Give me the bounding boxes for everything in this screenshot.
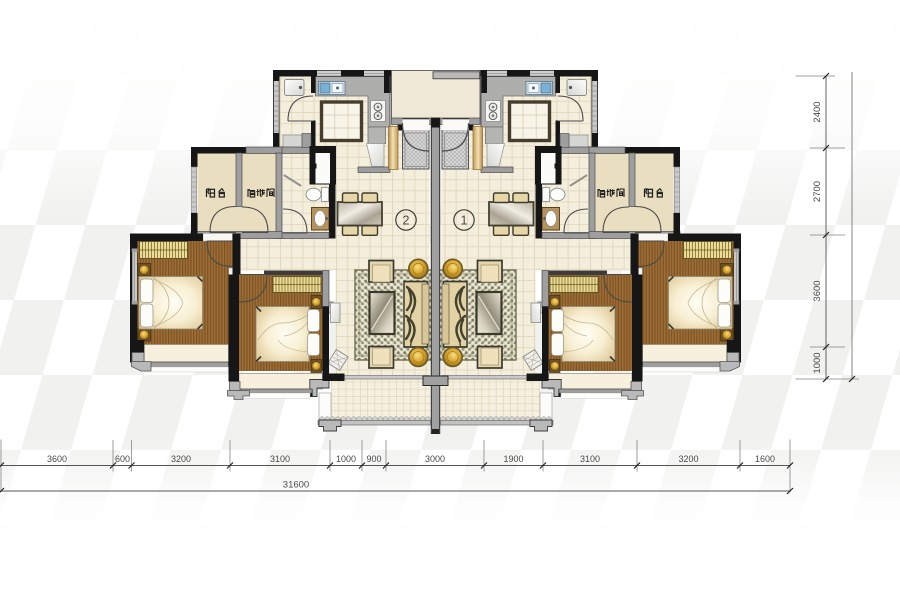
svg-text:600: 600 (115, 454, 130, 464)
svg-text:900: 900 (366, 454, 381, 464)
svg-text:2400: 2400 (812, 101, 823, 122)
svg-text:3600: 3600 (47, 454, 67, 464)
svg-text:1000: 1000 (336, 454, 356, 464)
svg-text:3100: 3100 (580, 454, 600, 464)
svg-text:3000: 3000 (425, 454, 445, 464)
svg-text:1000: 1000 (812, 352, 823, 373)
svg-text:3100: 3100 (270, 454, 290, 464)
svg-text:1900: 1900 (503, 454, 523, 464)
svg-text:1: 1 (461, 214, 468, 228)
svg-text:3200: 3200 (678, 454, 698, 464)
svg-text:31600: 31600 (283, 480, 309, 491)
svg-text:3600: 3600 (812, 280, 823, 301)
svg-text:2700: 2700 (812, 181, 823, 202)
svg-text:1600: 1600 (755, 454, 775, 464)
svg-text:3200: 3200 (171, 454, 191, 464)
svg-text:2: 2 (403, 214, 410, 228)
